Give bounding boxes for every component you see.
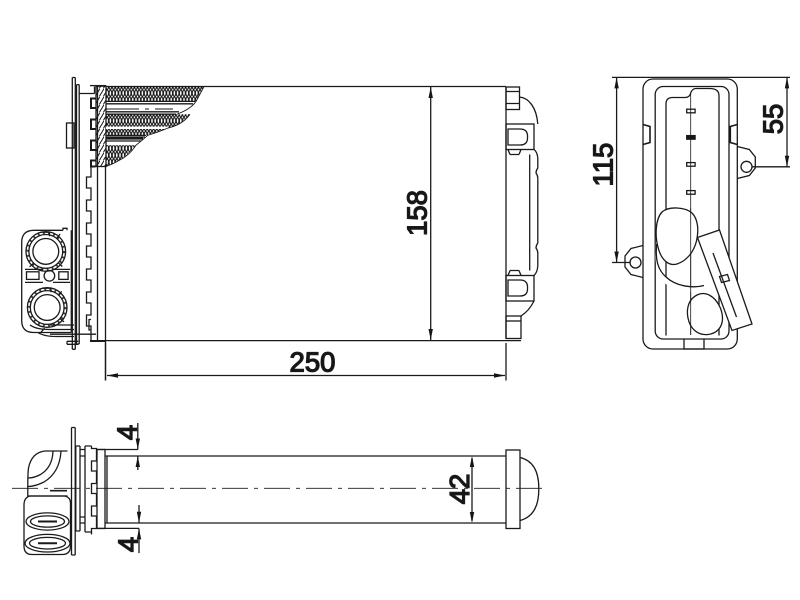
- svg-text:4: 4: [112, 537, 143, 552]
- svg-text:55: 55: [757, 104, 788, 135]
- svg-text:250: 250: [290, 347, 336, 378]
- svg-text:115: 115: [587, 143, 618, 187]
- svg-text:42: 42: [444, 474, 475, 505]
- svg-text:4: 4: [111, 425, 142, 440]
- svg-text:158: 158: [401, 190, 432, 236]
